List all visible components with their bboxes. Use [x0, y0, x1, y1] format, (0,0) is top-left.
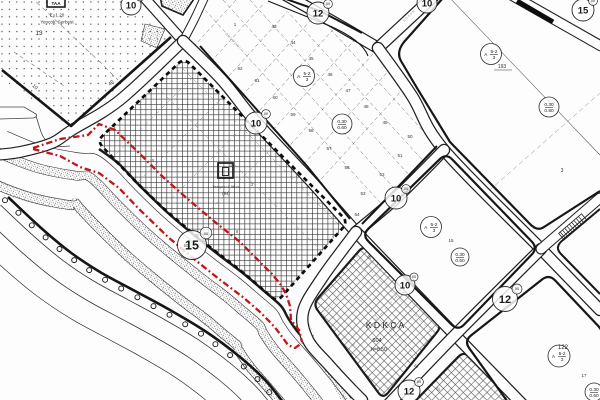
svg-text:h=8.50: h=8.50 — [371, 347, 387, 353]
svg-text:43: 43 — [271, 24, 277, 29]
svg-text:12: 12 — [404, 386, 415, 397]
svg-text:00: 00 — [404, 187, 408, 191]
svg-text:48: 48 — [363, 104, 369, 109]
svg-text:5-2: 5-2 — [303, 71, 310, 77]
svg-text:E=1.20: E=1.20 — [50, 13, 65, 18]
svg-text:5-2: 5-2 — [430, 222, 437, 228]
svg-text:15: 15 — [578, 5, 589, 16]
svg-text:0.60: 0.60 — [589, 393, 599, 399]
svg-text:3: 3 — [561, 357, 564, 363]
svg-text:53: 53 — [360, 191, 366, 196]
svg-text:0.30: 0.30 — [544, 102, 554, 108]
svg-text:10: 10 — [400, 280, 411, 291]
svg-text:10: 10 — [251, 118, 262, 129]
svg-text:52: 52 — [379, 172, 385, 177]
svg-text:60: 60 — [272, 95, 278, 100]
svg-text:5-2: 5-2 — [490, 49, 497, 55]
svg-text:57: 57 — [326, 146, 332, 151]
svg-text:00: 00 — [417, 380, 421, 384]
svg-text:12: 12 — [499, 294, 511, 306]
svg-text:46: 46 — [327, 72, 333, 77]
svg-text:50: 50 — [184, 243, 189, 248]
svg-text:K D K Ç A: K D K Ç A — [366, 320, 405, 330]
svg-text:0.30: 0.30 — [455, 252, 465, 258]
svg-text:3: 3 — [493, 55, 496, 61]
svg-text:50: 50 — [407, 134, 413, 139]
svg-text:54: 54 — [354, 212, 360, 217]
svg-text:0.60: 0.60 — [455, 258, 465, 264]
svg-text:62: 62 — [237, 66, 243, 71]
svg-text:47: 47 — [345, 88, 351, 93]
svg-text:Yençok: Serbest: Yençok: Serbest — [40, 20, 74, 25]
svg-text:(94): (94) — [222, 191, 230, 196]
svg-text:61: 61 — [254, 78, 260, 83]
svg-text:00: 00 — [204, 232, 208, 236]
svg-text:00: 00 — [264, 112, 268, 116]
svg-text:3: 3 — [561, 168, 564, 174]
svg-text:00: 00 — [515, 287, 519, 291]
svg-text:10: 10 — [422, 0, 433, 9]
svg-text:00: 00 — [591, 0, 595, 3]
svg-text:3: 3 — [433, 228, 436, 234]
svg-text:45: 45 — [308, 56, 314, 61]
svg-text:3: 3 — [306, 77, 309, 83]
svg-text:15: 15 — [448, 238, 454, 243]
svg-text:193: 193 — [498, 64, 507, 70]
svg-text:00: 00 — [412, 275, 416, 279]
svg-text:0.30: 0.30 — [337, 119, 347, 125]
svg-text:122: 122 — [558, 345, 569, 351]
svg-text:17: 17 — [581, 373, 587, 378]
svg-text:00: 00 — [326, 2, 330, 6]
svg-text:10: 10 — [126, 0, 137, 11]
svg-text:45: 45 — [150, 158, 155, 163]
svg-text:56: 56 — [344, 165, 350, 170]
svg-text:Yençok=4.50 m: Yençok=4.50 m — [212, 184, 240, 189]
svg-text:5-2: 5-2 — [559, 351, 566, 357]
svg-text:13: 13 — [35, 30, 43, 37]
svg-text:TAA: TAA — [51, 1, 61, 6]
svg-text:0.80: 0.80 — [544, 108, 554, 114]
svg-text:51: 51 — [397, 153, 403, 158]
svg-text:604: 604 — [372, 338, 381, 344]
svg-text:0.30: 0.30 — [589, 387, 599, 393]
svg-text:10: 10 — [391, 193, 402, 204]
svg-text:44: 44 — [290, 40, 296, 45]
svg-text:0.60: 0.60 — [337, 125, 347, 131]
svg-text:12: 12 — [313, 8, 324, 19]
svg-text:49: 49 — [382, 120, 388, 125]
svg-text:40: 40 — [230, 163, 235, 168]
svg-text:59: 59 — [290, 112, 296, 117]
svg-text:58: 58 — [308, 128, 314, 133]
